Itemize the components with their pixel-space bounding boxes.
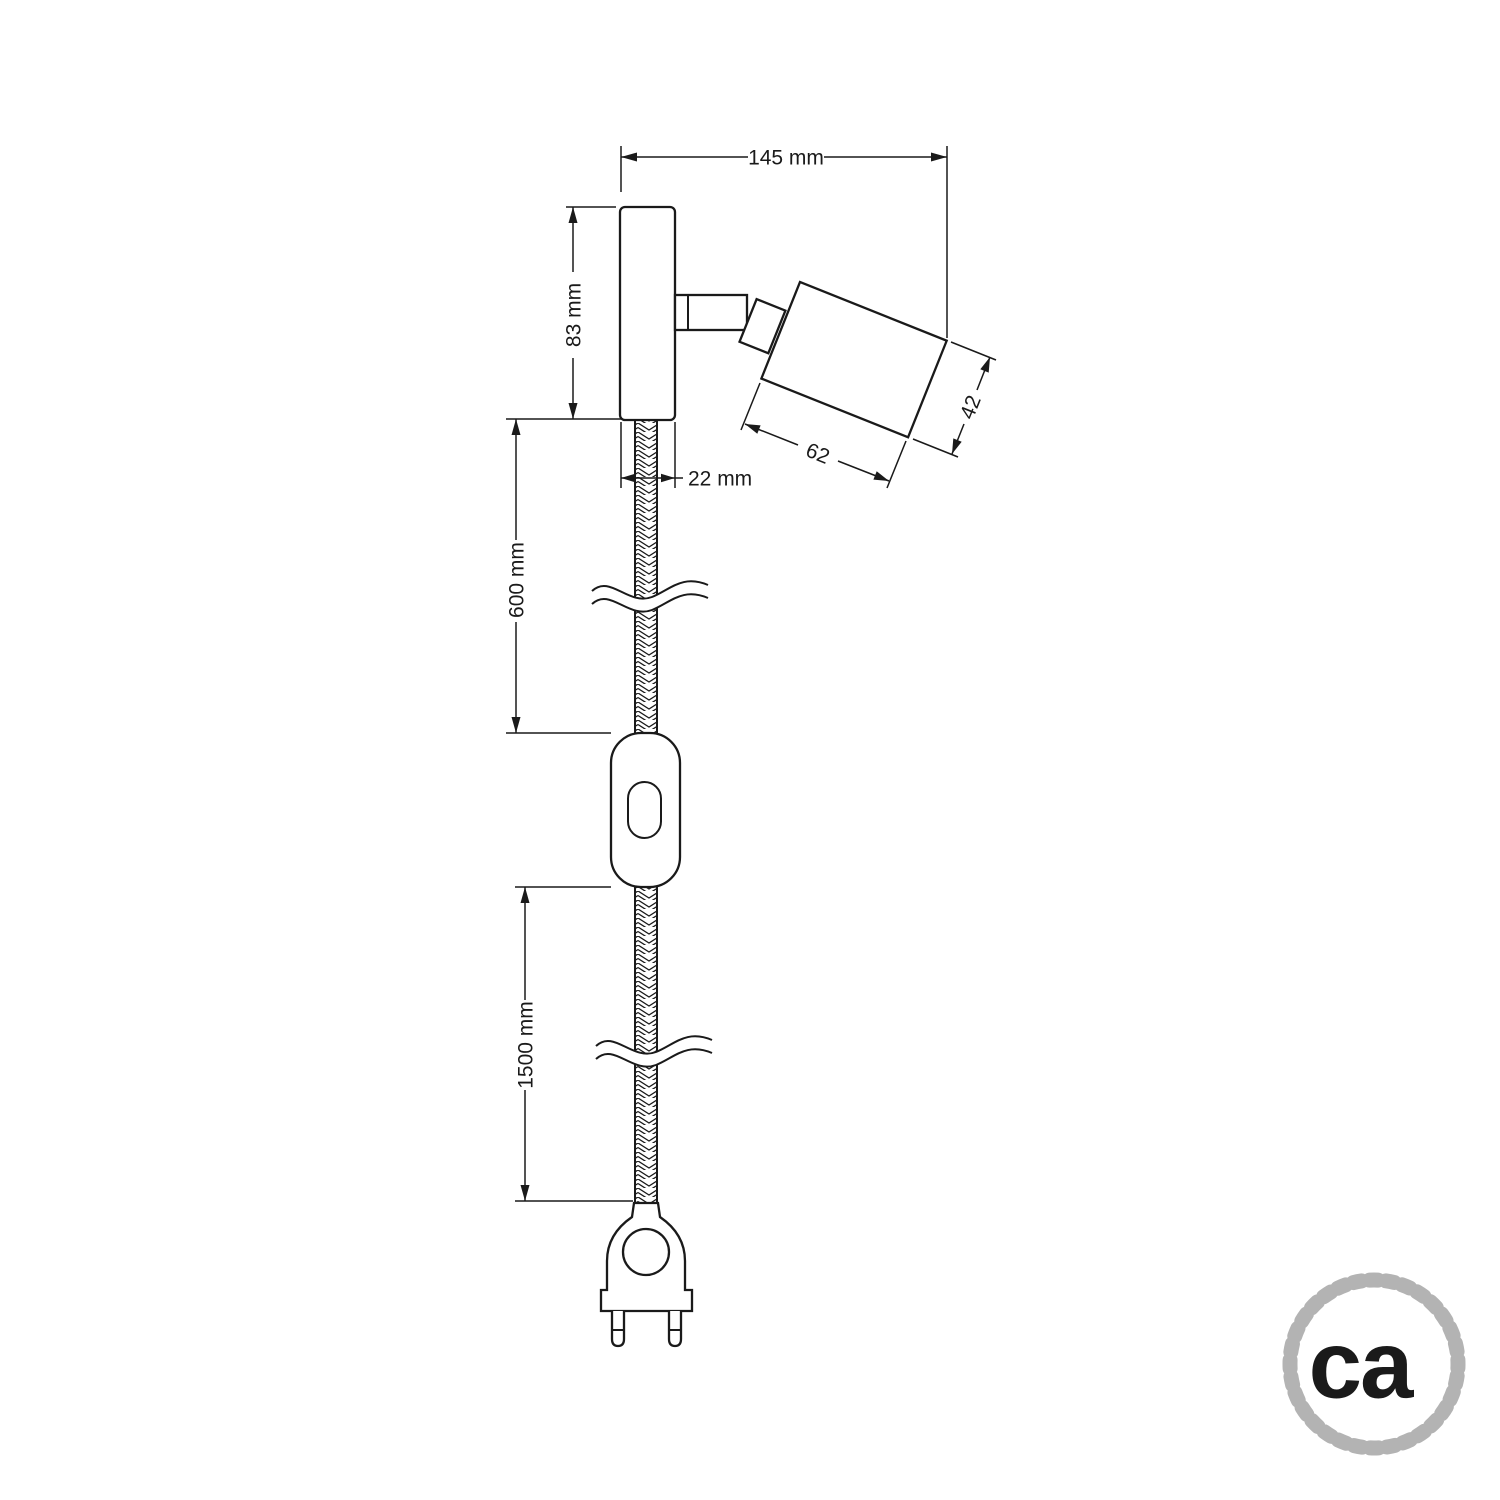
- dim-label-upper-cable: 600 mm: [505, 542, 528, 618]
- dim-label-plate-width: 22 mm: [688, 467, 752, 490]
- switch-button: [628, 782, 661, 838]
- dim-label-head-length: 62: [803, 439, 833, 469]
- technical-drawing-svg: 145 mm 83 mm 22 mm 600 mm 1500 mm 62 42 …: [0, 0, 1500, 1500]
- inline-switch: [611, 733, 680, 887]
- adjustable-arm: [675, 295, 747, 330]
- plug-hole: [623, 1229, 669, 1275]
- plug-pin-left: [612, 1311, 624, 1346]
- dim-label-head-diameter: 42: [956, 392, 986, 422]
- dim-label-lower-cable: 1500 mm: [514, 1001, 537, 1089]
- plug-pin-right: [669, 1311, 681, 1346]
- spotlight-head: [761, 282, 946, 437]
- drawing-canvas: 145 mm 83 mm 22 mm 600 mm 1500 mm 62 42 …: [0, 0, 1500, 1500]
- wall-plate: [620, 207, 675, 420]
- dim-label-plate-height: 83 mm: [562, 283, 585, 347]
- brand-logo: ca: [1279, 1269, 1469, 1459]
- dim-label-overall-width: 145 mm: [748, 146, 824, 169]
- logo-text: ca: [1309, 1312, 1414, 1419]
- euro-plug: [601, 1203, 692, 1346]
